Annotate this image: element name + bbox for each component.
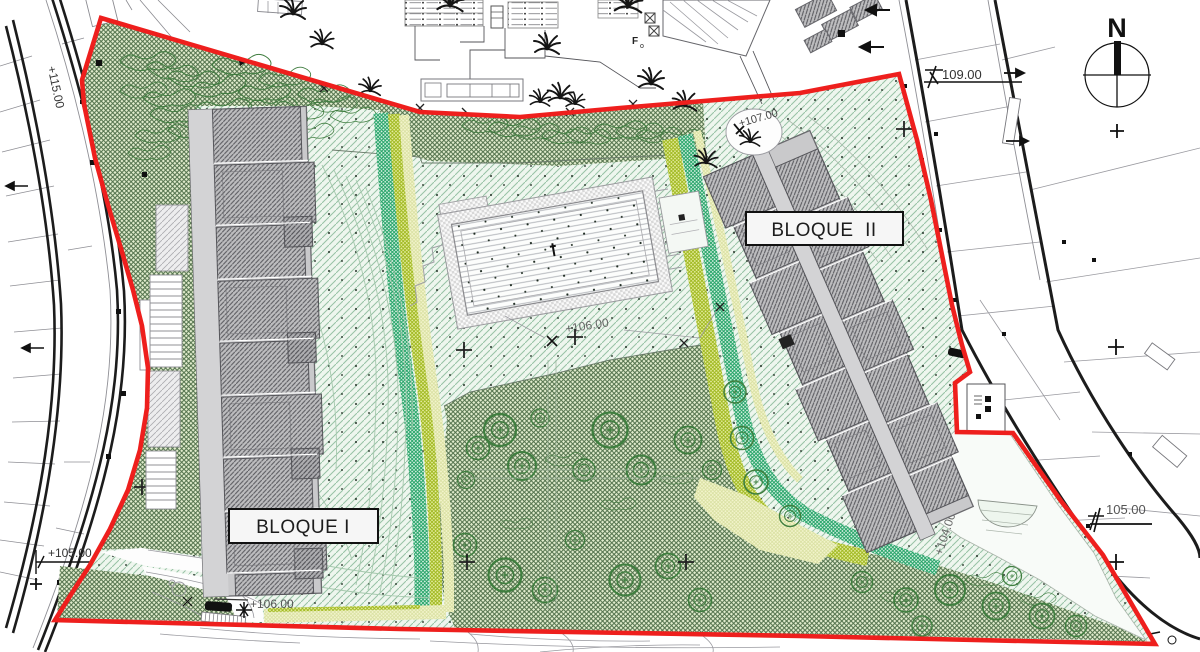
svg-text:+106.00: +106.00 [250, 597, 294, 611]
svg-text:105.00: 105.00 [1106, 502, 1146, 517]
svg-text:F: F [632, 36, 638, 47]
svg-text:BLOQUE I: BLOQUE I [256, 517, 350, 538]
svg-text:BLOQUE II: BLOQUE II [771, 220, 876, 241]
svg-text:o: o [640, 43, 644, 50]
svg-text:N: N [1107, 13, 1127, 43]
svg-text:109.00: 109.00 [942, 67, 982, 82]
svg-text:+105.00: +105.00 [48, 546, 92, 560]
